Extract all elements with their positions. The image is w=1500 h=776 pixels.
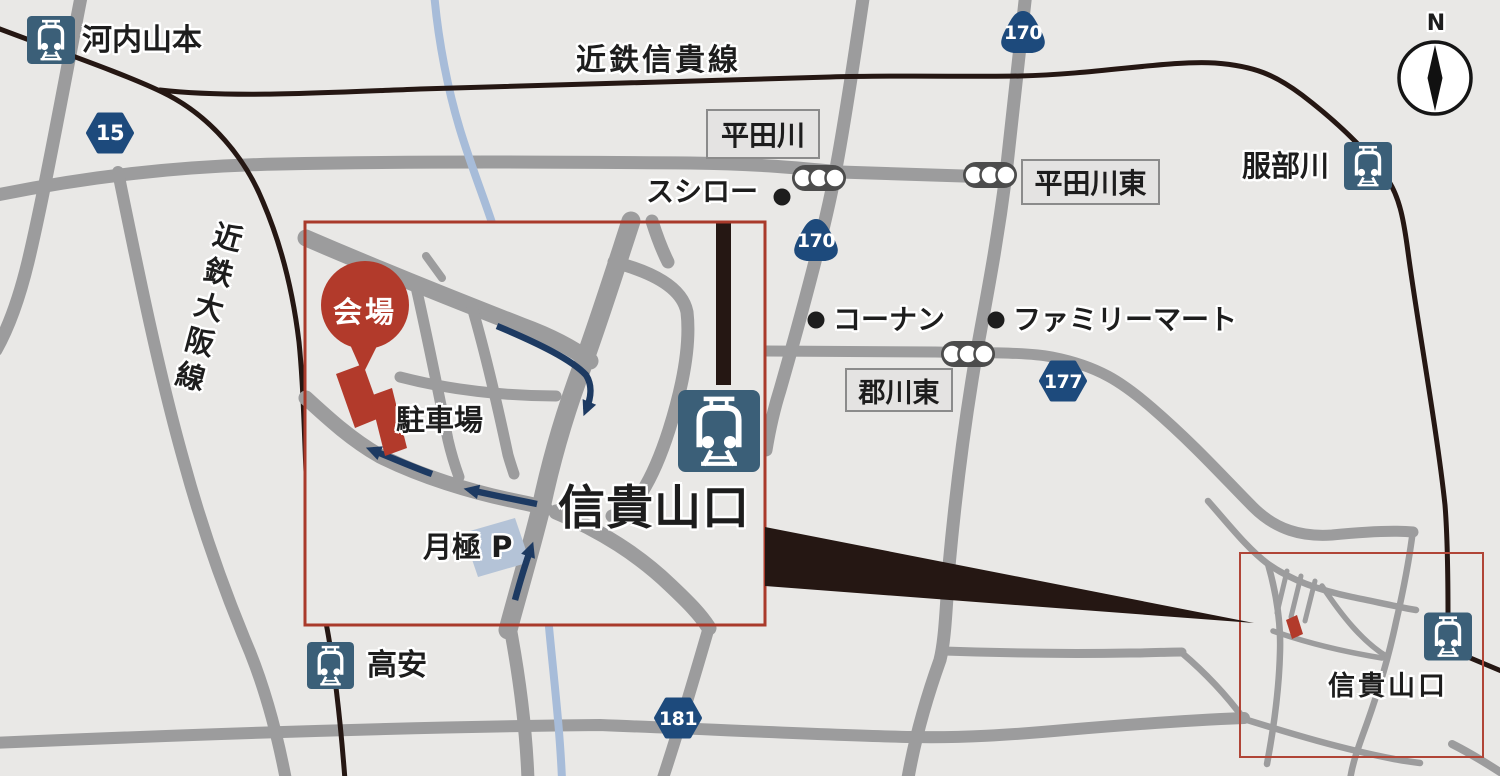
poi-label-sushiro: スシロー bbox=[646, 177, 758, 208]
venue-label: 会場 bbox=[323, 289, 407, 331]
compass-north-label: N bbox=[1424, 12, 1448, 36]
station-label-hattorigawa: 服部川 bbox=[1242, 151, 1329, 183]
route-shield-number-170: 170 bbox=[1001, 22, 1045, 44]
route-shield-number-181: 181 bbox=[656, 708, 700, 730]
train-station-icon bbox=[27, 16, 75, 64]
intersection-label-hiratagawa: 平田川 bbox=[706, 109, 820, 159]
train-station-icon bbox=[307, 642, 354, 689]
poi-label-familymart: ファミリーマート bbox=[1013, 305, 1237, 336]
traffic-signal-icon bbox=[792, 165, 846, 191]
route-shield-number-170: 170 bbox=[794, 230, 838, 252]
route-shield-number-177: 177 bbox=[1041, 371, 1085, 393]
parking-label: 駐車場 bbox=[396, 405, 483, 437]
intersection-label-korigawa-higashi: 郡川東 bbox=[845, 368, 953, 412]
road-below-inset bbox=[510, 627, 528, 776]
train-station-icon bbox=[1344, 142, 1392, 190]
station-label-takayasu: 高安 bbox=[367, 649, 427, 682]
railway-label-shigi-line: 近鉄信貴線 bbox=[576, 44, 741, 77]
monthly-parking-label: 月極 P bbox=[423, 532, 512, 564]
train-station-icon bbox=[678, 390, 760, 472]
inset-railway-bar bbox=[716, 221, 731, 385]
traffic-signal-icon bbox=[963, 162, 1017, 188]
station-label-shigisanguchi-mini: 信貴山口 bbox=[1328, 672, 1448, 702]
callout-wedge bbox=[765, 527, 1254, 623]
train-station-icon bbox=[1424, 613, 1472, 661]
familymart-dot bbox=[988, 312, 1005, 329]
sushiro-dot bbox=[774, 189, 791, 206]
konan-dot bbox=[808, 312, 825, 329]
access-map: 河内山本 近鉄信貴線 近鉄大阪線 平田川 スシロー 平田川東 服部川 コーナン … bbox=[0, 0, 1500, 776]
poi-label-konan: コーナン bbox=[833, 305, 945, 336]
intersection-label-hiratagawa-higashi: 平田川東 bbox=[1021, 159, 1160, 205]
road-branch-east bbox=[944, 651, 1182, 653]
minimap-roads bbox=[1182, 501, 1420, 776]
compass-icon bbox=[1399, 42, 1471, 114]
road-route181 bbox=[0, 718, 1244, 743]
route-shield-number-15: 15 bbox=[88, 121, 132, 145]
traffic-signal-icon bbox=[941, 341, 995, 367]
station-label-kawachi-yamamoto: 河内山本 bbox=[82, 24, 202, 57]
station-label-shigisanguchi: 信貴山口 bbox=[558, 483, 750, 535]
